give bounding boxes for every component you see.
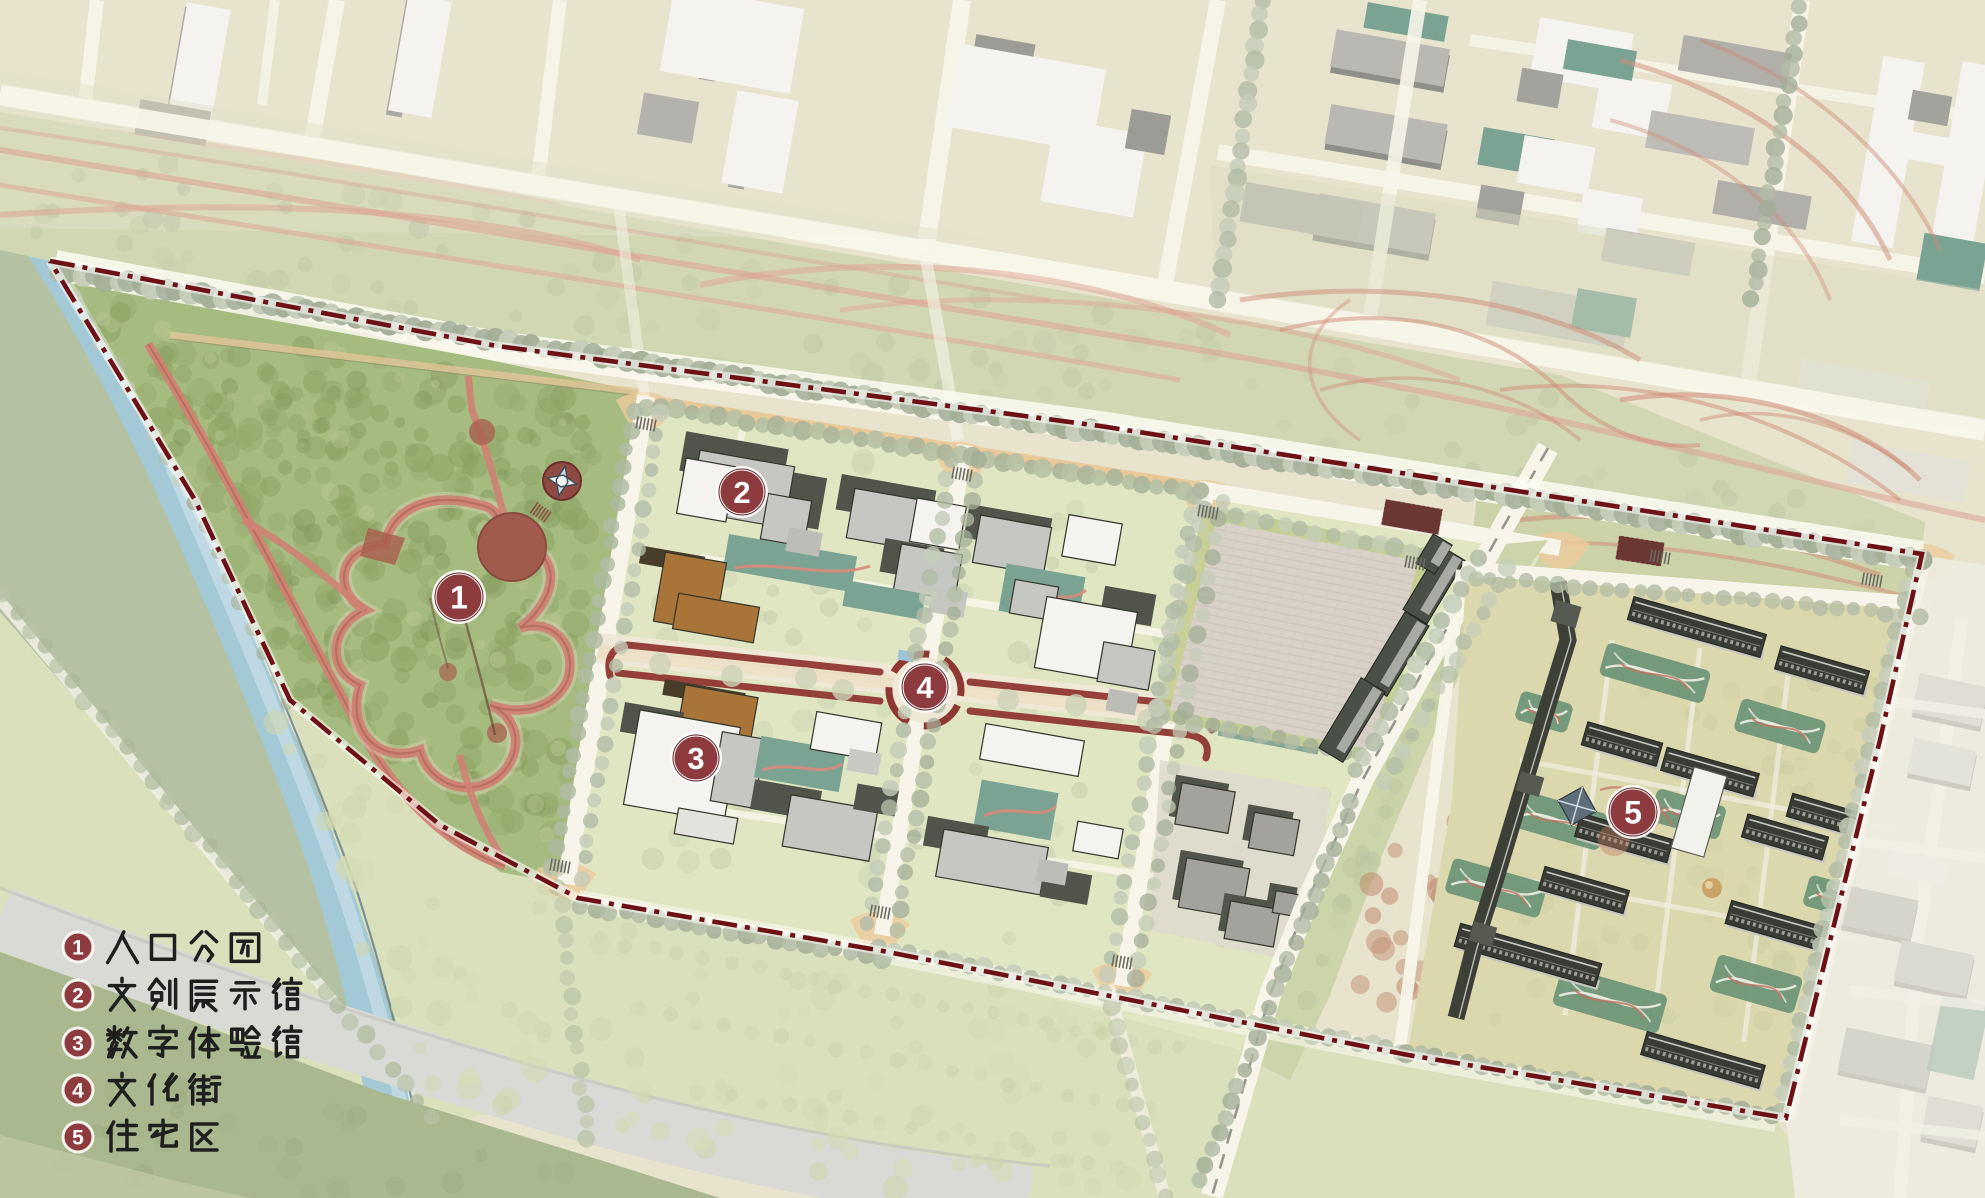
svg-text:2: 2: [72, 985, 84, 1008]
svg-text:3: 3: [72, 1033, 84, 1056]
svg-text:5: 5: [72, 1127, 84, 1150]
svg-text:1: 1: [72, 937, 84, 960]
svg-text:4: 4: [72, 1080, 84, 1103]
